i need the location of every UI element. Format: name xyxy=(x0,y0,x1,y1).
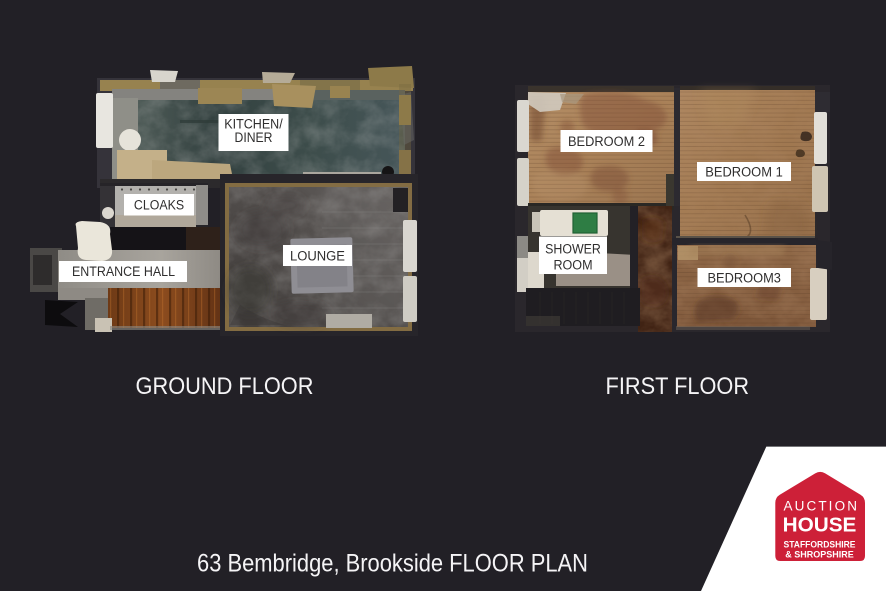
svg-text:BEDROOM 2: BEDROOM 2 xyxy=(568,134,645,149)
svg-text:FIRST FLOOR: FIRST FLOOR xyxy=(606,373,750,400)
svg-text:LOUNGE: LOUNGE xyxy=(290,249,345,264)
svg-text:63 Bembridge, Brookside FLOOR: 63 Bembridge, Brookside FLOOR PLAN xyxy=(197,550,588,578)
svg-text:CLOAKS: CLOAKS xyxy=(134,197,184,212)
svg-text:ENTRANCE HALL: ENTRANCE HALL xyxy=(72,264,175,279)
svg-text:GROUND FLOOR: GROUND FLOOR xyxy=(136,373,314,400)
svg-text:BEDROOM 1: BEDROOM 1 xyxy=(705,165,783,180)
svg-text:ROOM: ROOM xyxy=(553,258,592,273)
svg-text:HOUSE: HOUSE xyxy=(783,514,857,537)
svg-text:& SHROPSHIRE: & SHROPSHIRE xyxy=(785,549,853,560)
svg-text:BEDROOM3: BEDROOM3 xyxy=(708,271,781,286)
svg-text:SHOWER: SHOWER xyxy=(545,242,601,257)
svg-text:DINER: DINER xyxy=(235,130,273,145)
